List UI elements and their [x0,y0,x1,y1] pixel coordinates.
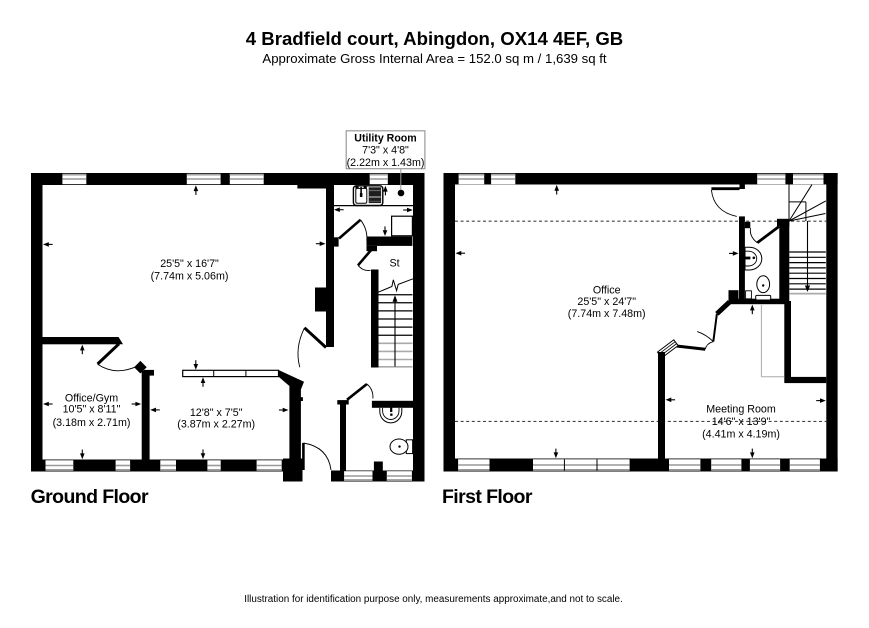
svg-text:Office: Office [593,284,621,296]
svg-text:(3.87m x 2.27m): (3.87m x 2.27m) [177,419,255,431]
svg-text:12'8" x 7'5": 12'8" x 7'5" [190,407,243,419]
svg-text:(7.74m x 7.48m): (7.74m x 7.48m) [568,308,646,320]
svg-text:St: St [389,258,399,270]
svg-text:(3.18m x 2.71m): (3.18m x 2.71m) [53,417,131,429]
svg-text:(4.41m x 4.19m): (4.41m x 4.19m) [702,428,780,440]
svg-text:First Floor: First Floor [442,486,533,508]
svg-text:4 Bradfield court, Abingdon, O: 4 Bradfield court, Abingdon, OX14 4EF, G… [246,28,623,49]
svg-text:Office/Gym: Office/Gym [65,393,118,405]
svg-text:Ground Floor: Ground Floor [31,486,149,508]
svg-text:10'5" x 8'11": 10'5" x 8'11" [63,404,121,416]
svg-text:(7.74m x 5.06m): (7.74m x 5.06m) [151,271,229,283]
svg-text:14'6" x 13'9": 14'6" x 13'9" [712,416,771,428]
svg-text:25'5" x 16'7": 25'5" x 16'7" [160,258,219,270]
svg-text:Illustration for identificatio: Illustration for identification purpose … [244,594,623,605]
svg-text:Meeting Room: Meeting Room [706,404,776,416]
svg-text:25'5" x 24'7": 25'5" x 24'7" [577,296,636,308]
svg-text:Utility Room: Utility Room [354,133,416,145]
svg-text:Approximate Gross Internal Are: Approximate Gross Internal Area = 152.0 … [262,51,606,66]
svg-text:7'3" x 4'8": 7'3" x 4'8" [362,144,409,156]
svg-text:(2.22m x 1.43m): (2.22m x 1.43m) [347,157,425,169]
